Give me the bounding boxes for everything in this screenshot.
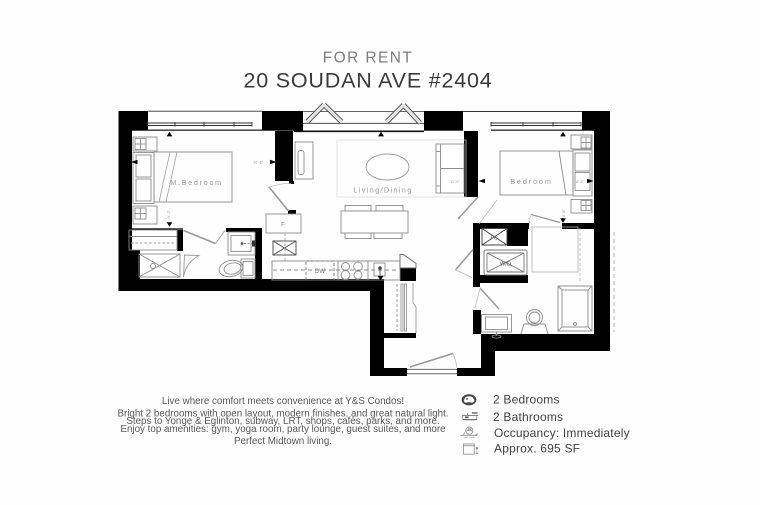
svg-text:2 Bedrooms: 2 Bedrooms xyxy=(493,393,560,407)
svg-text:Approx. 695 SF: Approx. 695 SF xyxy=(494,442,580,456)
svg-text:9'-2": 9'-2" xyxy=(166,209,171,218)
svg-text:DW: DW xyxy=(315,268,325,275)
svg-text:16'-1": 16'-1" xyxy=(253,160,264,165)
svg-text:W/D: W/D xyxy=(500,262,511,268)
svg-text:Living/Dining: Living/Dining xyxy=(353,186,412,195)
svg-text:F: F xyxy=(281,223,285,229)
svg-text:8'-8": 8'-8" xyxy=(561,208,566,217)
svg-text:2 Bathrooms: 2 Bathrooms xyxy=(493,410,563,424)
svg-text:FC: FC xyxy=(490,236,497,242)
svg-text:FOR RENT: FOR RENT xyxy=(323,50,413,67)
svg-text:Bedroom: Bedroom xyxy=(510,177,553,186)
svg-text:11'-6": 11'-6" xyxy=(450,179,460,184)
svg-text:Enjoy top amenities: gym, yoga: Enjoy top amenities: gym, yoga room, par… xyxy=(120,424,446,435)
svg-text:Perfect Midtown living.: Perfect Midtown living. xyxy=(234,436,332,447)
svg-text:M.Bedroom: M.Bedroom xyxy=(170,178,223,187)
svg-text:8'-2": 8'-2" xyxy=(576,179,585,184)
svg-text:Live where comfort meets conve: Live where comfort meets convenience at … xyxy=(162,396,404,407)
svg-text:Occupancy: Immediately: Occupancy: Immediately xyxy=(494,426,630,440)
svg-text:20 SOUDAN AVE #2404: 20 SOUDAN AVE #2404 xyxy=(243,69,492,93)
